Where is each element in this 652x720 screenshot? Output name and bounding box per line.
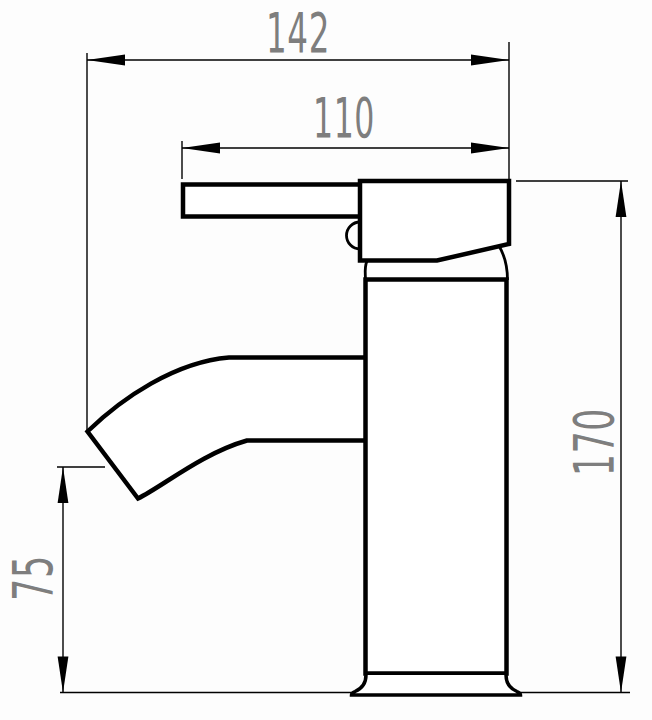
- dimension-spout-height: 75: [0, 467, 105, 693]
- dim-label-75: 75: [0, 555, 65, 601]
- arrow-down-icon: [58, 657, 69, 693]
- faucet-base: [352, 675, 521, 695]
- dim-label-142: 142: [266, 0, 330, 65]
- arrow-down-icon: [616, 657, 627, 693]
- arrow-up-icon: [616, 181, 627, 217]
- faucet-neck-left-curve: [365, 261, 367, 280]
- technical-drawing-page: 142 110 170 75: [0, 0, 652, 720]
- arrow-left-icon: [182, 143, 220, 154]
- faucet-handle-lever: [183, 185, 365, 217]
- faucet-dimension-drawing: 142 110 170 75: [0, 0, 652, 720]
- arrow-right-icon: [471, 143, 509, 154]
- faucet-body: [366, 280, 507, 674]
- dim-label-170: 170: [561, 408, 626, 476]
- dimension-overall-height: 170: [516, 181, 628, 693]
- faucet-outline: [88, 181, 521, 695]
- arrow-right-icon: [471, 55, 509, 66]
- faucet-head: [360, 181, 509, 261]
- faucet-spout: [88, 358, 366, 499]
- dim-label-110: 110: [313, 85, 375, 150]
- dimension-upper-width: 110: [182, 85, 509, 179]
- arrow-left-icon: [87, 55, 125, 66]
- faucet-neck-right-curve: [499, 246, 508, 280]
- arrow-up-icon: [58, 467, 69, 503]
